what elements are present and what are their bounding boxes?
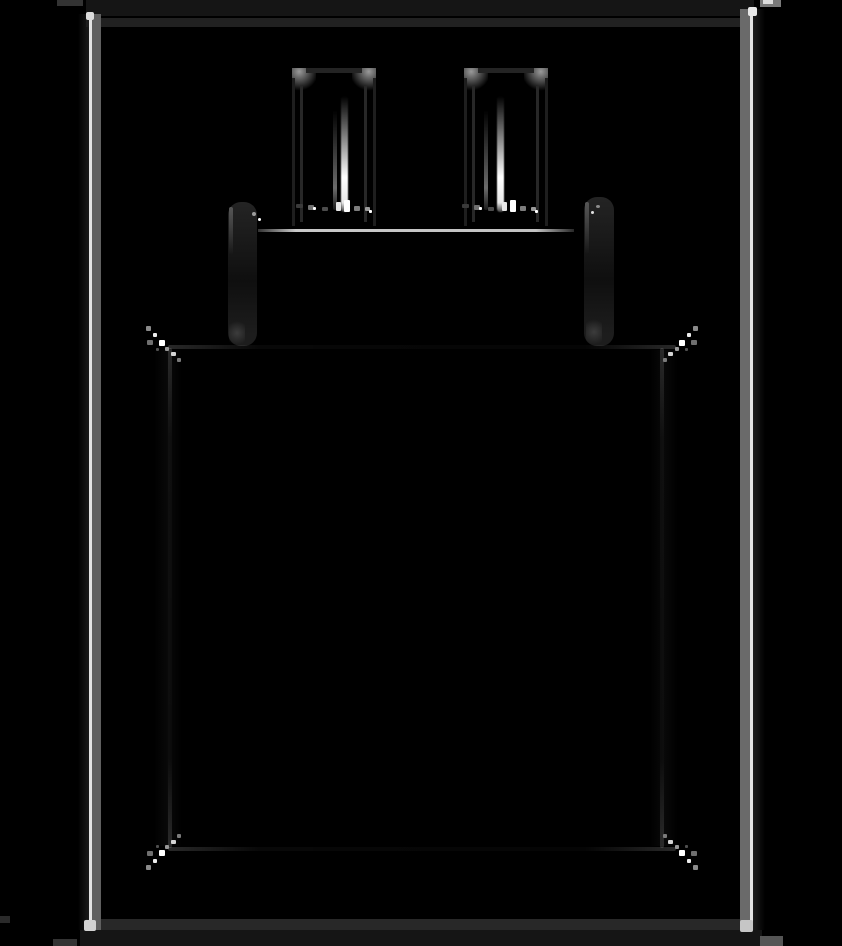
sketch-dash [462,204,469,208]
sparkle-dot [159,340,165,346]
sparkle-dot [693,865,698,870]
sparkle-dot [156,845,159,848]
sketch-dash [510,200,516,212]
neck-left-streak [229,207,233,255]
sparkle-dot [685,348,688,351]
neck-left-foot-highlight [229,318,245,348]
frame-right-border-band [740,9,750,930]
sparkle-dot [663,834,667,838]
sparkle-dot [177,834,181,838]
sparkle-dot [171,840,176,844]
sketch-dash [296,204,303,208]
sketch-speck [596,205,600,208]
frame-overshoot-top-left [57,0,83,6]
frame-top-border [86,18,754,27]
sparkle-dot [146,326,151,331]
prong-right-highlight-faint [484,110,488,210]
sparkle-dot [679,850,685,856]
sparkle-dot [685,845,688,848]
frame-left-border-band [92,14,101,930]
drawing-canvas [0,0,842,946]
body-left-edge-glow [154,350,182,846]
prong-right-top-edge [478,68,534,73]
prong-right-bottom-dashes [458,198,542,216]
body-corner-sparkle-bottom-right [654,830,700,876]
sparkle-dot [156,348,159,351]
frame-right-border-shadow [753,9,765,930]
sparkle-dot [675,347,679,351]
prong-right-highlight [497,96,504,212]
sparkle-dot [147,851,153,856]
frame-bottom-border [86,919,754,930]
frame-overshoot-top-right-highlight [763,0,773,4]
frame-corner-dot-bottom-left [84,920,96,931]
sketch-speck [258,218,261,221]
sketch-dash [502,202,507,211]
sketch-dash [369,210,372,213]
prong-right-side-stroke [545,78,548,226]
neck-right-streak [585,202,589,254]
sparkle-dot [691,340,697,345]
sparkle-dot [177,358,181,362]
sparkle-dot [153,859,157,863]
sparkle-dot [171,352,176,356]
sketch-dash [535,210,538,213]
sketch-speck [252,212,256,216]
sketch-dash [488,207,494,211]
sparkle-dot [153,333,157,337]
sparkle-dot [675,845,679,849]
body-right-edge-glow [650,350,678,846]
neck-top-edge [258,229,574,232]
sparkle-dot [691,851,697,856]
frame-top-strip [86,0,754,16]
sparkle-dot [146,865,151,870]
sketch-dash [336,202,341,211]
sketch-dash [520,206,526,211]
sketch-dash [354,206,360,211]
body-corner-sparkle-top-left [144,320,190,366]
sparkle-dot [687,859,691,863]
sparkle-dot [147,340,153,345]
sparkle-dot [668,352,673,356]
sparkle-dot [687,333,691,337]
sketch-dash [322,207,328,211]
sketch-dash [344,200,350,212]
sketch-dash [313,207,316,210]
frame-overshoot-bottom-left [53,939,77,946]
neck-right-foot-highlight [586,316,602,348]
sparkle-dot [165,347,169,351]
frame-corner-dot-top-right [748,7,757,16]
frame-corner-dot-top-left [86,12,94,20]
sparkle-dot [663,358,667,362]
frame-overshoot-bottom-right [760,936,783,946]
sparkle-dot [679,340,685,346]
body-top-edge [168,345,676,349]
sparkle-dot [693,326,698,331]
frame-bottom-strip [80,930,762,946]
frame-corner-dot-bottom-right [740,920,753,932]
sketch-speck [591,211,594,214]
body-corner-sparkle-bottom-left [144,830,190,876]
sparkle-dot [165,845,169,849]
sparkle-dot [159,850,165,856]
prong-left-top-edge [306,68,362,73]
sparkle-dot [668,840,673,844]
prong-left-highlight [341,96,348,212]
prong-left-highlight-faint [333,110,337,210]
prong-left-bottom-dashes [292,198,376,216]
body-corner-sparkle-top-right [654,320,700,366]
frame-overshoot-left-edge [0,916,10,923]
body-bottom-edge [168,847,676,851]
sketch-dash [479,207,482,210]
